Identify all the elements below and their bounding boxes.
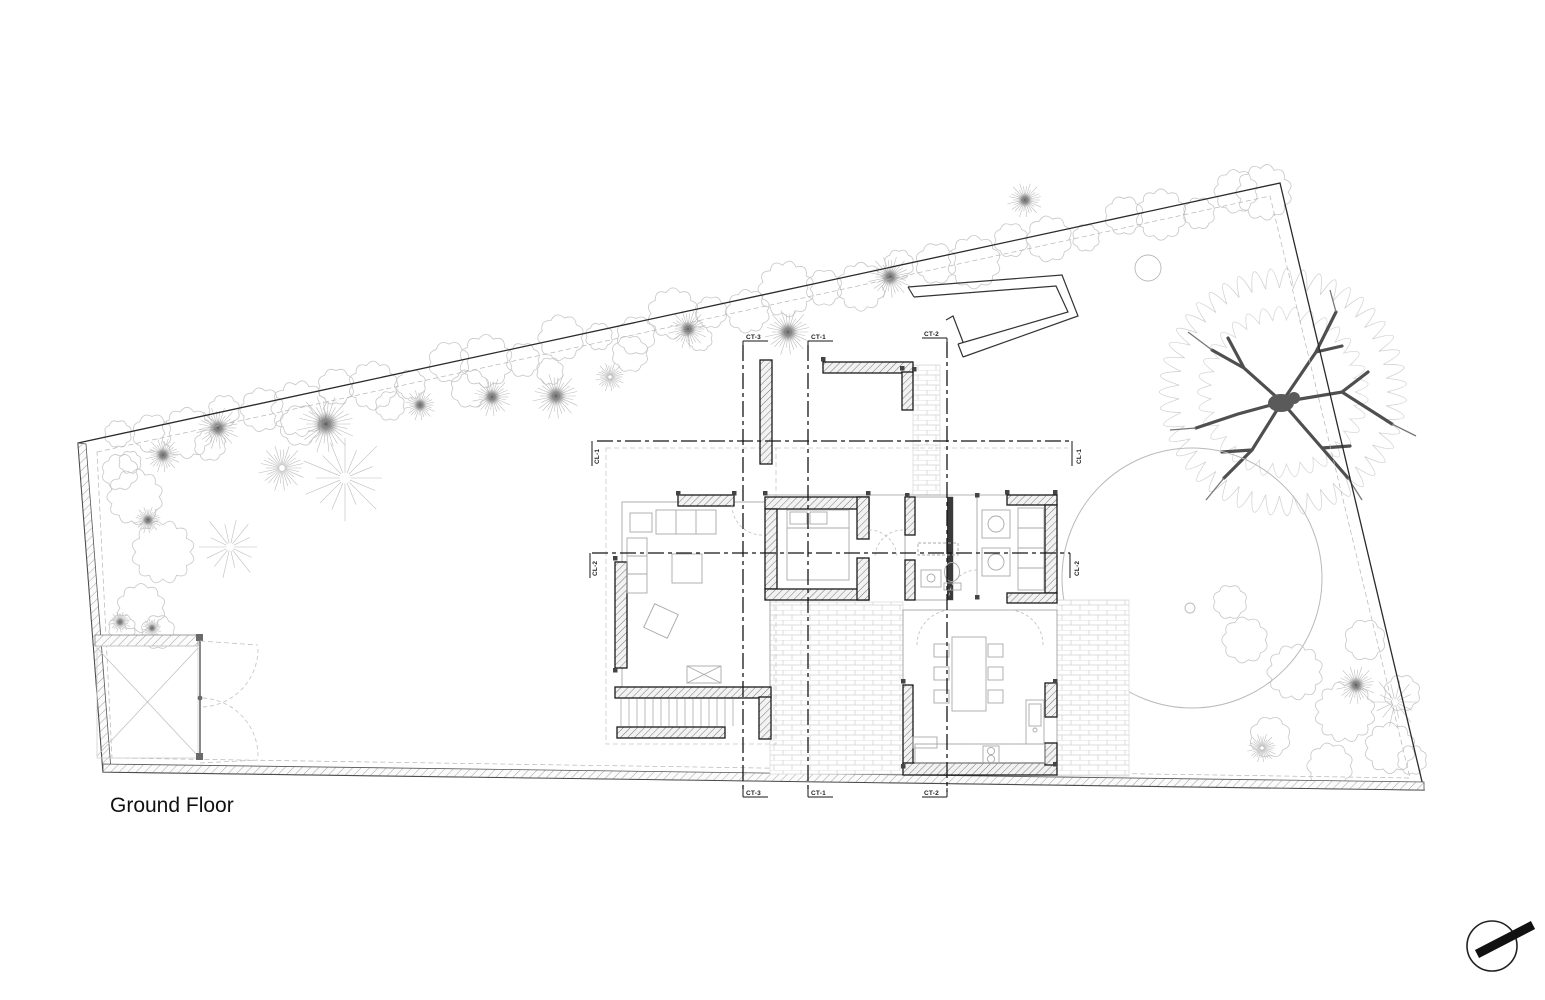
section-label-ct3-top: CT-3: [746, 334, 761, 341]
bed: [787, 510, 849, 580]
ground-floor-plan-drawing: CT-3 CT-1 CT-2 CT-3 CT-1 CT-2 CL-1 CL-1 …: [0, 0, 1545, 1000]
drawing-title: Ground Floor: [110, 794, 234, 817]
side-sofa: [627, 538, 647, 593]
shelving: [1018, 508, 1044, 590]
coffee-table: [672, 554, 702, 583]
section-label-cl1-left: CL-1: [594, 449, 601, 464]
north-arrow-icon: [1467, 921, 1533, 971]
kitchen-sink: [1029, 704, 1041, 726]
section-label-cl2-left: CL-2: [592, 561, 599, 576]
site-boundary: [78, 183, 1424, 790]
washer: [982, 510, 1010, 538]
section-label-ct2-bottom: CT-2: [924, 790, 939, 797]
armchair: [630, 513, 652, 532]
bathroom-sink: [921, 570, 941, 587]
boundary-wall-left: [78, 443, 111, 772]
section-label-ct3-bottom: CT-3: [746, 790, 761, 797]
cabinet: [913, 737, 937, 748]
section-label-cl1-right: CL-1: [1076, 449, 1083, 464]
section-label-ct2-top: CT-2: [924, 331, 939, 338]
boundary-wall-bottom: [103, 764, 1424, 790]
sofa: [656, 510, 716, 534]
section-label-ct1-bottom: CT-1: [811, 790, 826, 797]
section-label-ct1-top: CT-1: [811, 334, 826, 341]
dryer: [982, 548, 1010, 576]
lounge-chair: [644, 604, 679, 639]
gate-swing-arc: [200, 698, 258, 756]
chair: [988, 690, 1003, 703]
dining-table: [952, 637, 986, 711]
stairs: [621, 699, 733, 726]
garden-wall-structure: [908, 275, 1078, 357]
chair: [988, 667, 1003, 680]
kitchen-dining-room: [903, 610, 1057, 775]
kitchen-counter: [915, 744, 1045, 763]
gate-swing-arc: [200, 649, 258, 707]
entrance-gate: [95, 634, 258, 763]
chair: [988, 644, 1003, 657]
section-label-cl2-right: CL-2: [1074, 561, 1081, 576]
floor-plan-canvas: CT-3 CT-1 CT-2 CT-3 CT-1 CT-2 CL-1 CL-1 …: [0, 0, 1545, 1000]
